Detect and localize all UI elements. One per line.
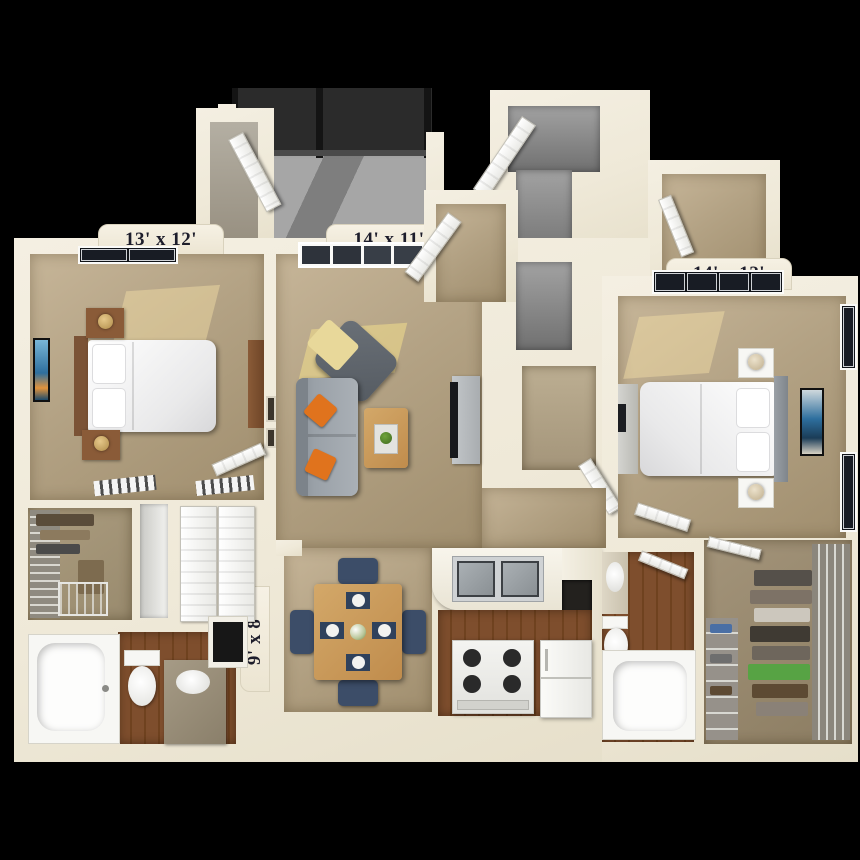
closet-left-wire-basket	[58, 582, 108, 616]
closet-right-clothes-3	[754, 608, 810, 622]
closet-left-clothes-1	[36, 514, 94, 526]
closet-right-shelving	[812, 544, 850, 740]
lamp-right-bottom-icon	[748, 484, 764, 500]
kitchen-sink	[452, 556, 544, 602]
closet-left-clothes-3	[36, 544, 80, 554]
refrigerator	[540, 640, 592, 718]
stove	[452, 640, 534, 714]
balcony-post-mid-icon	[316, 88, 323, 158]
gallery-frame-2	[266, 428, 276, 448]
sofa-back	[296, 378, 308, 496]
closet-right-clothes-5	[752, 646, 810, 660]
closet-left-shelving	[30, 510, 60, 618]
table-centerpiece-icon	[350, 624, 366, 640]
lamp-right-top-icon	[748, 354, 764, 370]
dining-chair-top	[338, 558, 378, 584]
bedroom-right-sunlight	[623, 311, 724, 379]
dining-chair-left	[290, 610, 314, 654]
toilet-1-tank	[124, 650, 160, 666]
tv-icon	[450, 382, 458, 458]
bed-right-duvet-fold	[700, 384, 702, 474]
placemat-top	[346, 592, 370, 609]
shoe-3	[710, 686, 732, 695]
sofa-cushion-seam	[308, 434, 356, 437]
dresser-left-bedroom	[248, 340, 264, 428]
closet-right-clothes-4	[750, 626, 810, 642]
bedroom-right-side-window-2	[840, 452, 857, 532]
bed-left-pillow-bottom	[92, 388, 126, 428]
closet-right-clothes-7	[752, 684, 808, 698]
dining-wall-stub	[276, 540, 302, 556]
hall-passage-carpet	[482, 488, 606, 548]
bed-right-pillow-top	[736, 388, 770, 428]
closet-right-clothes-1	[754, 570, 812, 586]
hall-counter	[208, 616, 248, 668]
floor-plan-canvas: 13' x 12' 14' x 11' 14' x 12' 9' x 8'	[0, 0, 860, 860]
closet-left-clothes-2	[40, 530, 90, 540]
dining-chair-bottom	[338, 680, 378, 706]
vanity-1	[164, 660, 226, 744]
lamp-left-bottom-icon	[94, 436, 109, 451]
closet-right-clothes-8	[756, 702, 808, 716]
gallery-frame-1	[266, 396, 276, 422]
plant-icon	[380, 432, 392, 444]
dresser-tv-icon	[618, 404, 626, 432]
bed-right-pillow-bottom	[736, 432, 770, 472]
hall-tile	[516, 262, 572, 350]
toilet-1-bowl	[128, 666, 156, 706]
bathtub-1	[28, 634, 120, 744]
placemat-right	[372, 622, 396, 639]
closet-right-clothes-2	[750, 590, 812, 604]
bed-right-headboard	[774, 376, 788, 482]
bed-left-headboard	[74, 336, 88, 436]
bed-left-pillow-top	[92, 344, 126, 384]
placemat-bottom	[346, 654, 370, 671]
bedroom-right-top-window	[652, 270, 784, 294]
lamp-left-top-icon	[98, 314, 113, 329]
bedroom-right-wall-art	[800, 388, 824, 456]
hall-closet-door-right	[218, 506, 255, 622]
patio-slider-door	[298, 242, 426, 268]
closet-right-shoe-rack	[706, 618, 738, 740]
closet-right-clothes-6	[748, 664, 810, 680]
vanity-2	[602, 552, 628, 614]
bathtub-2	[602, 650, 696, 740]
shoe-2	[710, 654, 732, 663]
bedroom-left-sunlight	[112, 285, 220, 347]
bedroom-left-window	[78, 246, 178, 264]
washer-dryer-stack	[140, 504, 168, 618]
bed-left-duvet-fold	[132, 342, 134, 430]
dining-chair-right	[402, 610, 426, 654]
bedroom-right-side-window-1	[840, 304, 857, 370]
hall-closet-door-left	[180, 506, 217, 622]
placemat-left	[320, 622, 344, 639]
shoe-1	[710, 624, 732, 633]
bedroom-left-wall-art	[33, 338, 50, 402]
wall-oven-niche	[562, 580, 592, 614]
linen-closet-interior	[522, 366, 596, 470]
